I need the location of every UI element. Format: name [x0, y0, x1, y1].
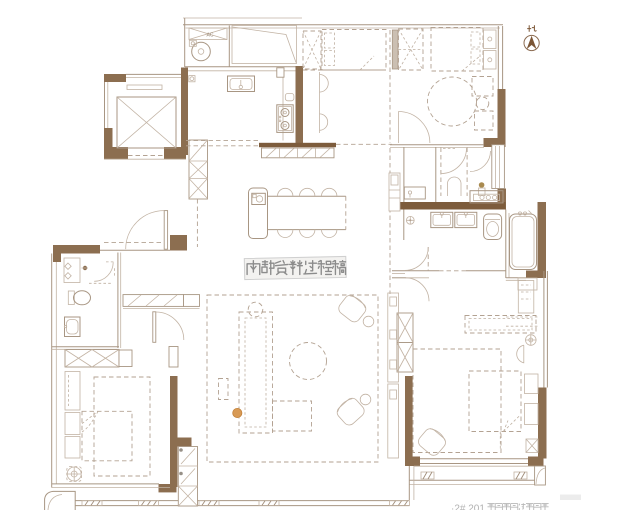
svg-text:·2# 201: ·2# 201 — [451, 504, 485, 510]
svg-text:AC: AC — [207, 33, 214, 39]
